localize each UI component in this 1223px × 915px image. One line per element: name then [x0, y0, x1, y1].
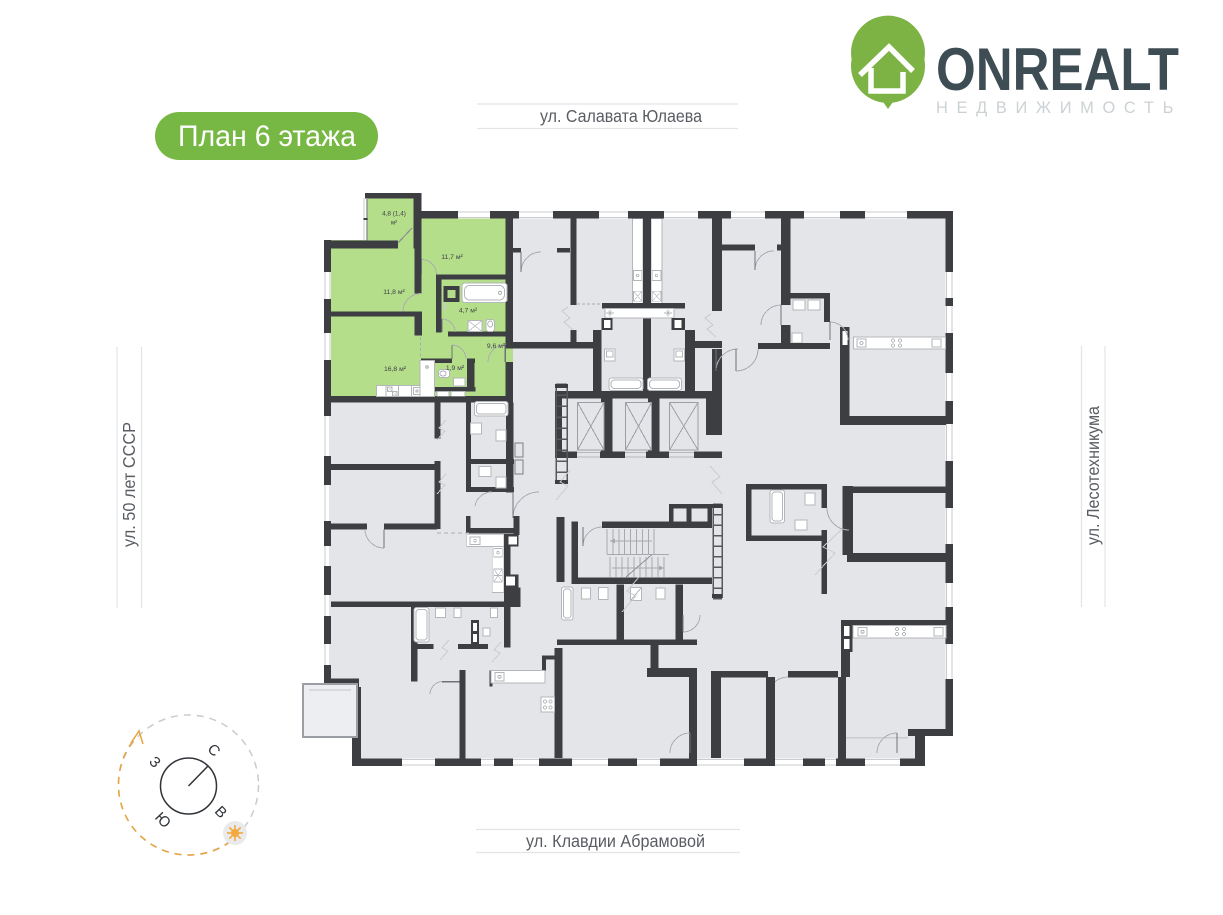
svg-text:НЕДВИЖИМОСТЬ: НЕДВИЖИМОСТЬ — [936, 98, 1182, 117]
svg-text:11,7 м²: 11,7 м² — [441, 254, 463, 261]
svg-text:м²: м² — [391, 221, 397, 227]
svg-text:План 6 этажа: План 6 этажа — [178, 120, 356, 153]
svg-text:4,7 м²: 4,7 м² — [459, 308, 478, 315]
svg-text:ONREALT: ONREALT — [936, 36, 1179, 103]
svg-text:1,9 м²: 1,9 м² — [446, 365, 465, 372]
svg-text:11,8 м²: 11,8 м² — [383, 289, 405, 296]
svg-text:ул. Лесотехникума: ул. Лесотехникума — [1083, 406, 1103, 545]
svg-text:ул. Салавата Юлаева: ул. Салавата Юлаева — [540, 106, 702, 126]
svg-text:ул. 50 лет СССР: ул. 50 лет СССР — [119, 422, 139, 547]
svg-text:9,6 м²: 9,6 м² — [487, 343, 506, 350]
svg-text:4,8 (1,4): 4,8 (1,4) — [382, 211, 406, 218]
svg-text:16,8 м²: 16,8 м² — [384, 366, 407, 373]
svg-text:ул. Клавдии Абрамовой: ул. Клавдии Абрамовой — [526, 831, 705, 851]
